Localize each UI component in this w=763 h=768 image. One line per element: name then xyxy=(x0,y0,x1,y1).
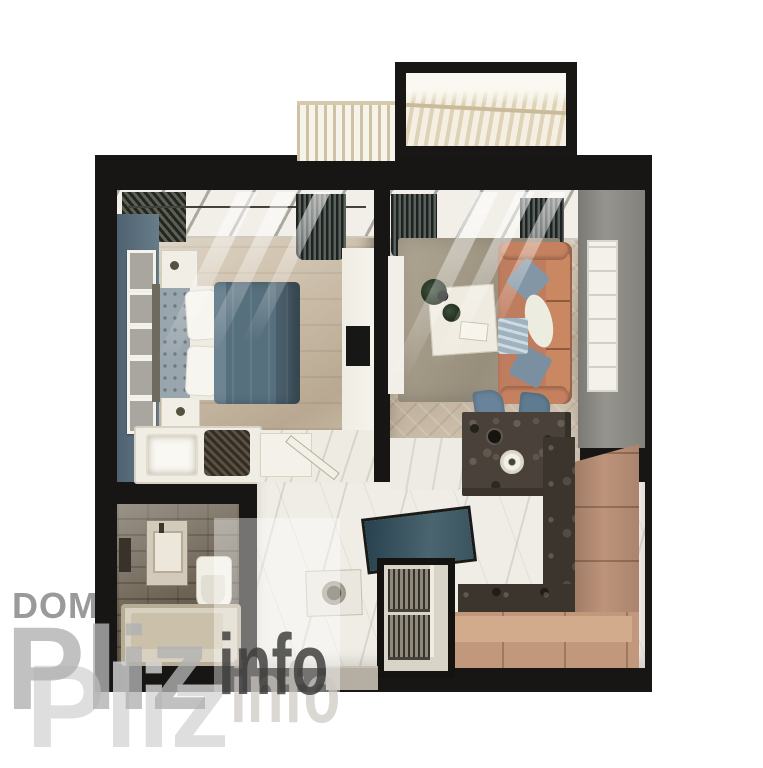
open-dishwasher xyxy=(377,558,455,678)
wicker-basket xyxy=(204,430,250,476)
balcony-railing xyxy=(297,101,395,161)
table-decor xyxy=(470,424,479,433)
kitchen-countertop xyxy=(458,584,575,614)
dishwasher-rail xyxy=(430,565,434,657)
sofa xyxy=(498,242,572,404)
watermark-backdrop xyxy=(214,518,340,694)
bedroom-tv xyxy=(346,326,370,366)
bench-cushion xyxy=(146,434,198,476)
faucet xyxy=(159,523,164,533)
wall-mirror-panel xyxy=(587,240,618,392)
shower-fixture xyxy=(119,538,131,572)
dishwasher-rack xyxy=(388,569,430,612)
bathroom-vanity xyxy=(146,520,188,586)
plate xyxy=(500,450,524,474)
balcony-canopy xyxy=(406,73,566,104)
storage-bench xyxy=(134,426,262,484)
nightstand-decor xyxy=(176,407,185,416)
kitchen-cabinet-face xyxy=(450,616,632,642)
folded-blanket xyxy=(498,318,528,354)
balcony xyxy=(395,62,577,157)
bottle xyxy=(488,430,501,443)
dishwasher-rack xyxy=(388,615,430,660)
bathtub-basin xyxy=(131,613,223,649)
nightstand-decor xyxy=(170,261,179,270)
balcony-rail xyxy=(406,102,566,114)
kitchen-cabinets xyxy=(442,612,639,668)
sink xyxy=(153,531,183,573)
apartment-3d-plan xyxy=(0,0,763,768)
headboard xyxy=(152,284,160,402)
floor-plan-image: DOM xyxy=(0,0,763,768)
